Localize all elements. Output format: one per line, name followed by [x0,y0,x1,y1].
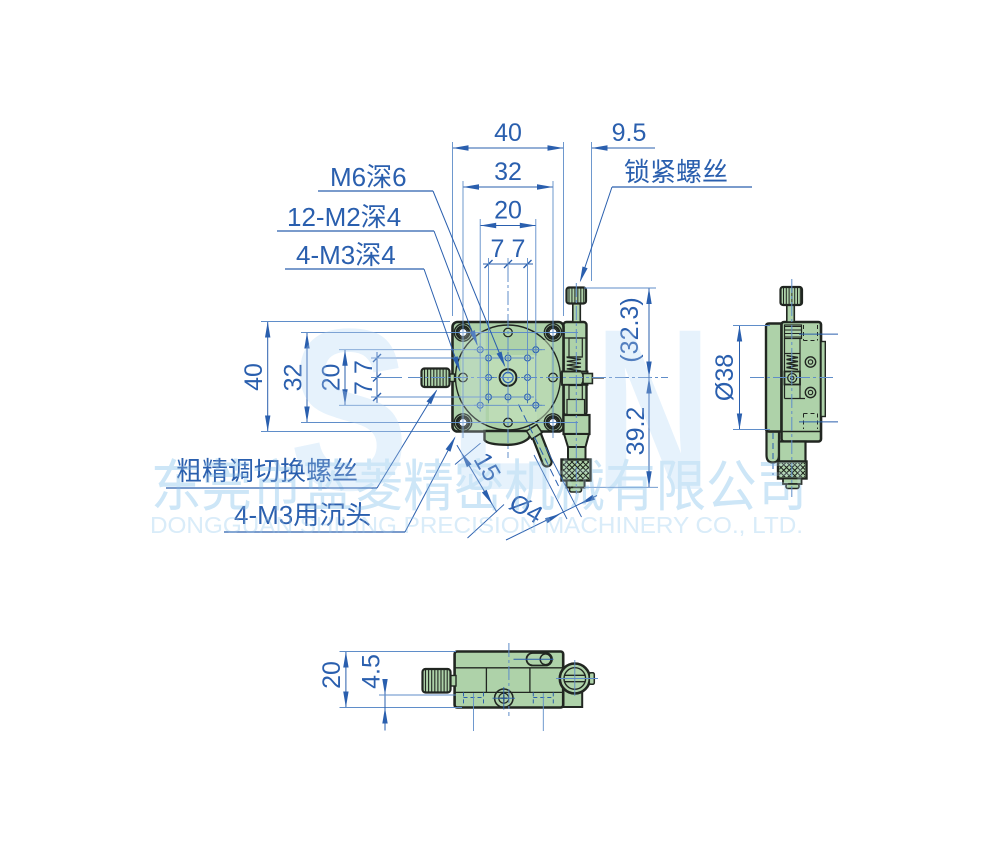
svg-text:DONGGUAN SHILING PRECISION MAC: DONGGUAN SHILING PRECISION MACHINERY CO.… [150,512,803,538]
svg-text:40: 40 [494,119,522,147]
svg-text:7: 7 [512,235,526,263]
svg-text:20: 20 [318,661,346,689]
svg-text:东莞市蓝菱精密机械有限公司: 东莞市蓝菱精密机械有限公司 [151,455,807,518]
svg-text:M6深6: M6深6 [330,162,407,192]
svg-text:锁紧螺丝: 锁紧螺丝 [624,157,728,187]
svg-text:32: 32 [494,158,522,186]
svg-text:4.5: 4.5 [358,654,386,689]
svg-text:Ø38: Ø38 [711,354,739,401]
svg-text:9.5: 9.5 [612,119,647,147]
svg-text:7: 7 [491,235,505,263]
svg-text:4-M3深4: 4-M3深4 [296,240,396,270]
svg-text:12-M2深4: 12-M2深4 [287,202,401,232]
svg-text:20: 20 [494,197,522,225]
svg-text:40: 40 [240,363,268,391]
